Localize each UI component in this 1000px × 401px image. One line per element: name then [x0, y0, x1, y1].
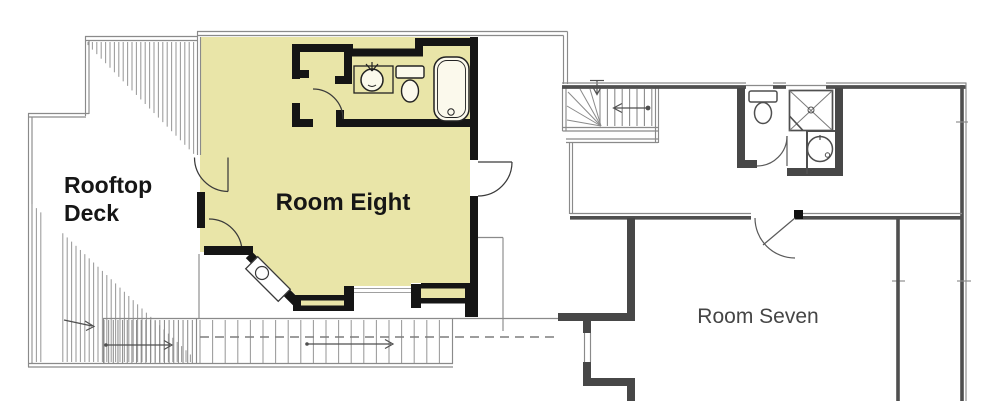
rooftop-deck-label-line2: Deck	[64, 200, 119, 226]
staircase	[563, 81, 659, 215]
roof-hatch-upper	[88, 42, 194, 154]
top-wall-window-2	[786, 80, 826, 92]
rooftop-deck-label-line1: Rooftop	[64, 172, 152, 198]
room-seven-label: Room Seven	[697, 305, 818, 328]
deck-railing	[103, 318, 465, 364]
toilet-fixture-two	[749, 91, 777, 124]
bay-window-right-glass	[421, 289, 465, 299]
floorplan-page: Rooftop Deck	[0, 0, 1000, 401]
lower-stair-treads	[200, 320, 439, 363]
round-sink-fixture	[807, 130, 835, 174]
room-seven-left-wall	[558, 218, 635, 401]
room-seven-door-gap	[751, 210, 795, 222]
room-eight-label: Room Eight	[276, 189, 411, 216]
bay-window-left-glass	[301, 301, 344, 306]
shower-fixture	[790, 91, 833, 131]
hall-door	[478, 162, 512, 196]
stair-winders	[567, 89, 601, 126]
bathtub-fixture	[434, 57, 469, 121]
bathroom-two-door	[757, 136, 787, 166]
room-seven: Room Seven	[558, 210, 962, 401]
room-eight-right-wall	[470, 37, 478, 160]
roof-hatch-lower	[32, 204, 190, 362]
floorplan-drawing: Rooftop Deck	[0, 0, 1000, 401]
top-wall-window-1	[746, 80, 773, 92]
room-eight-left-wall	[197, 192, 205, 228]
bathroom-two	[737, 88, 843, 176]
lower-stair-arrow	[305, 340, 393, 349]
